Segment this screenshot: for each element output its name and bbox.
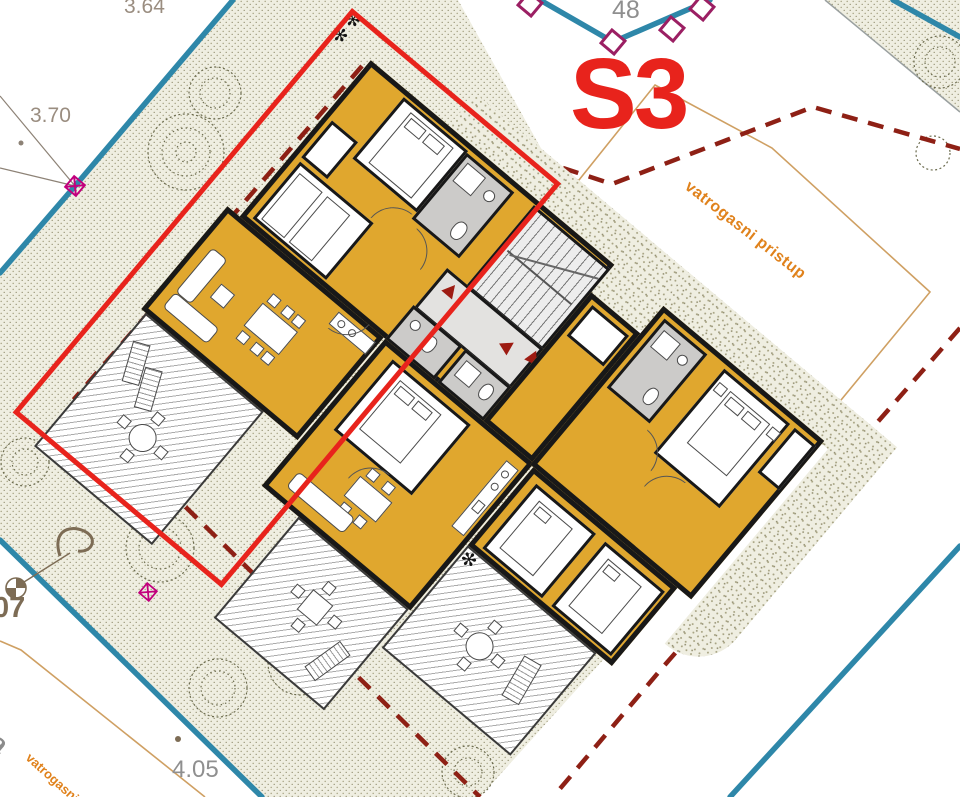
sun-lounger [304, 641, 350, 681]
chair [290, 618, 305, 633]
toilet [475, 381, 497, 403]
dimension-label: 4.05 [172, 756, 219, 784]
dimension-label: 3.64 [124, 0, 165, 19]
site-plan-canvas: ✻ ✻ ✻ S3 48 3.64 3.70 4.05 07 vatrogasni… [0, 0, 960, 797]
benchmark-label: 07 [0, 592, 25, 625]
chair [327, 614, 342, 629]
sink [675, 353, 690, 368]
sun-lounger [501, 655, 541, 705]
stair-direction-line [509, 254, 598, 279]
chair [456, 656, 471, 671]
chair [490, 653, 505, 668]
chair [487, 619, 502, 634]
leader-dot [175, 736, 181, 742]
unit-label: S3 [570, 44, 686, 144]
nightstand [766, 426, 781, 441]
shower [650, 330, 681, 361]
toilet [640, 385, 662, 408]
parcel-number: 48 [612, 0, 640, 25]
chair [453, 622, 468, 637]
chair [321, 581, 336, 596]
chair [290, 583, 305, 598]
dimension-label: 3.70 [30, 104, 71, 128]
shower [454, 360, 482, 388]
leader-dot [19, 141, 24, 146]
stair-rail [507, 250, 573, 306]
chair [352, 514, 367, 529]
